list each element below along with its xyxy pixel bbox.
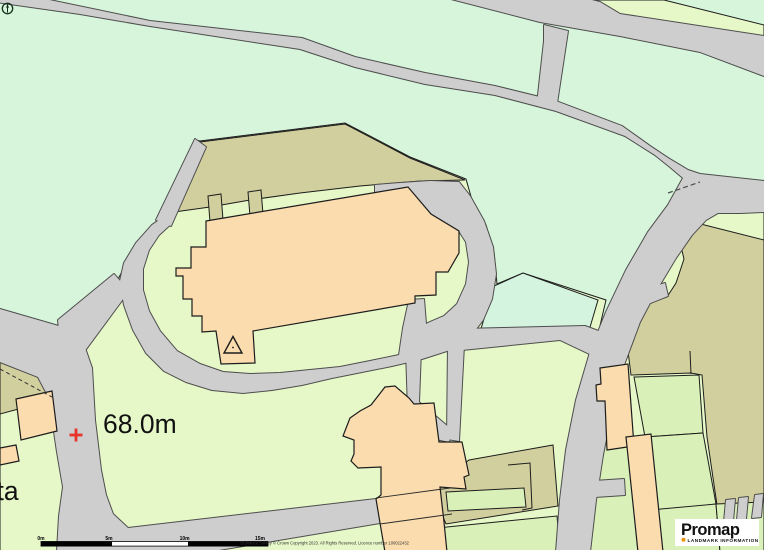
- svg-text:68.0m: 68.0m: [103, 409, 177, 439]
- svg-text:Ordnance Survey © Crown Copyri: Ordnance Survey © Crown Copyright 2023. …: [240, 541, 410, 546]
- svg-text:Promap: Promap: [681, 521, 740, 539]
- svg-text:5m: 5m: [105, 536, 113, 542]
- svg-text:10m: 10m: [180, 536, 191, 542]
- svg-text:0m: 0m: [37, 536, 45, 542]
- svg-text:LANDMARK INFORMATION: LANDMARK INFORMATION: [688, 538, 759, 543]
- svg-text:ta: ta: [0, 476, 19, 506]
